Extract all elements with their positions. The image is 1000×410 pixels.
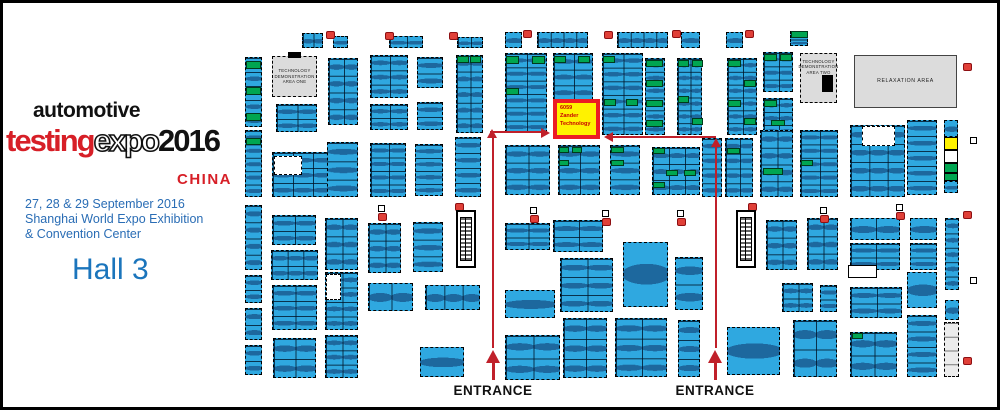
booth-block <box>370 143 406 197</box>
demo-area-stage <box>288 52 301 58</box>
featured-booth-cell <box>506 56 519 64</box>
booth-block <box>944 163 958 173</box>
featured-booth-cell <box>626 99 638 106</box>
featured-booth-cell <box>646 80 663 87</box>
route-arrow-line <box>492 362 495 380</box>
featured-booth-cell <box>246 138 261 145</box>
featured-booth-cell <box>678 60 689 67</box>
booth-block <box>370 55 408 98</box>
booth-block <box>944 120 958 137</box>
featured-booth-cell <box>763 168 783 175</box>
booth-block <box>273 338 316 378</box>
featured-booth-cell <box>611 160 624 166</box>
booth-block <box>944 322 959 377</box>
booth-block <box>272 285 317 330</box>
facility-icon <box>378 213 387 221</box>
booth-block <box>420 347 464 377</box>
escalator-icon <box>736 210 756 268</box>
booth-block <box>505 32 522 48</box>
booth-block <box>417 102 443 130</box>
highlighted-booth-name: Zander <box>560 113 596 121</box>
booth-block <box>505 335 560 380</box>
logo-word-china: CHINA <box>177 172 232 187</box>
featured-booth-cell <box>653 182 665 188</box>
tech-demo-area-two-label: TECHNOLOGY DEMONSTRATION AREA TWO <box>799 59 839 75</box>
booth-block <box>910 218 937 240</box>
route-arrow-head <box>604 132 613 142</box>
event-venue-line2: & Convention Center <box>25 227 203 242</box>
hall-label: Hall 3 <box>72 255 149 285</box>
featured-booth-cell <box>801 160 813 166</box>
booth-block <box>944 173 958 181</box>
featured-booth-cell <box>666 170 678 176</box>
featured-booth-cell <box>246 61 261 69</box>
logo-automotive: automotive <box>33 100 240 121</box>
booth-block <box>425 285 480 310</box>
featured-booth-cell <box>764 54 777 61</box>
featured-booth-cell <box>728 60 741 67</box>
logo-word-testing: testing <box>6 123 94 158</box>
booth-block <box>327 142 358 197</box>
booth-block <box>681 32 700 48</box>
featured-booth-cell <box>692 118 703 125</box>
facility-icon <box>820 215 829 223</box>
booth-block <box>457 37 483 48</box>
booth-block <box>245 308 262 340</box>
booth-block <box>727 327 780 375</box>
pillar-icon <box>378 205 385 212</box>
facility-icon <box>677 218 686 226</box>
booth-block <box>782 283 813 312</box>
booth-block <box>945 300 959 320</box>
facility-icon <box>523 30 532 38</box>
featured-booth-cell <box>678 96 689 103</box>
booth-block <box>850 218 900 240</box>
facility-icon <box>963 357 972 365</box>
booth-block <box>615 318 667 377</box>
booth-block <box>907 120 937 195</box>
featured-booth-cell <box>646 120 663 127</box>
booth-block <box>413 222 443 272</box>
booth-block <box>417 57 443 88</box>
booth-block <box>333 36 348 48</box>
pillar-icon <box>970 277 977 284</box>
tech-demo-area-one-label: TECHNOLOGY DEMONSTRATION AREA ONE <box>273 68 316 84</box>
escalator-track <box>465 217 472 261</box>
facility-icon <box>896 212 905 220</box>
booth-block <box>563 318 607 378</box>
booth-block <box>793 320 837 377</box>
booth-block <box>910 243 937 270</box>
booth-block <box>368 223 401 273</box>
booth-block <box>328 58 358 125</box>
booth-block <box>276 104 317 132</box>
facility-icon <box>963 211 972 219</box>
facility-icon <box>604 31 613 39</box>
booth-block <box>675 257 703 310</box>
route-arrow-line <box>613 136 716 138</box>
facility-icon <box>326 31 335 39</box>
featured-booth-cell <box>559 147 569 153</box>
booth-block <box>760 130 793 197</box>
featured-booth-cell <box>684 170 696 176</box>
featured-booth-cell <box>246 87 261 95</box>
featured-booth-cell <box>246 113 261 121</box>
booth-block <box>623 242 668 307</box>
booth-block <box>325 335 358 378</box>
featured-booth-cell <box>744 118 756 125</box>
booth-block <box>271 250 318 280</box>
featured-booth-cell <box>764 100 777 107</box>
booth-block <box>820 285 837 312</box>
route-arrow-head <box>541 128 550 138</box>
booth-block <box>302 33 323 48</box>
booth-block <box>368 283 413 311</box>
route-arrow-line <box>715 147 717 348</box>
logo-word-expo: expo <box>94 123 158 158</box>
featured-booth-cell <box>791 31 808 38</box>
relaxation-area-label: RELAXATION AREA <box>877 78 934 85</box>
entrance-label-left: ENTRANCE <box>428 383 558 398</box>
highlighted-booth: 6059 Zander Technology <box>553 99 600 139</box>
booth-block <box>617 32 668 48</box>
tech-demo-area-one: TECHNOLOGY DEMONSTRATION AREA ONE <box>272 56 317 97</box>
escalator-icon <box>456 210 476 268</box>
booth-block <box>560 258 613 312</box>
featured-booth-cell <box>572 147 582 153</box>
booth-block <box>245 205 262 270</box>
logo-testing-expo: testingexpo2016 <box>6 125 226 156</box>
pillar-icon <box>677 210 684 217</box>
booth-block <box>370 104 408 130</box>
booth-block <box>325 218 358 270</box>
booth-block <box>455 137 481 197</box>
featured-booth-cell <box>744 80 756 87</box>
featured-booth-cell <box>692 60 703 67</box>
pillar-icon <box>602 210 609 217</box>
booth-block <box>505 223 550 250</box>
pillar-icon <box>530 207 537 214</box>
route-arrow-head <box>487 129 497 138</box>
event-venue-line1: Shanghai World Expo Exhibition <box>25 212 203 227</box>
event-details: 27, 28 & 29 September 2016 Shanghai Worl… <box>25 197 203 242</box>
featured-booth-cell <box>780 54 792 61</box>
relaxation-area: RELAXATION AREA <box>854 55 957 108</box>
booth-block <box>456 55 483 133</box>
event-dates: 27, 28 & 29 September 2016 <box>25 197 203 212</box>
highlighted-booth-number: 6059 <box>560 105 596 113</box>
highlighted-booth-name2: Technology <box>560 121 596 129</box>
facility-icon <box>602 218 611 226</box>
featured-booth-cell <box>554 56 566 63</box>
booth-block <box>944 150 958 163</box>
booth-block <box>505 290 555 318</box>
vacant-booth-cell <box>274 156 302 175</box>
booth-block <box>389 36 423 48</box>
booth-block <box>415 144 443 196</box>
booth-block <box>725 138 753 197</box>
logo-word-year: 2016 <box>158 123 219 158</box>
facility-icon <box>385 32 394 40</box>
featured-booth-cell <box>532 56 545 64</box>
booth-block <box>945 218 959 290</box>
demo-area-stage <box>822 75 833 92</box>
booth-block <box>678 320 700 377</box>
booth-block <box>850 287 902 318</box>
featured-booth-cell <box>603 56 615 63</box>
escalator-track <box>745 217 752 261</box>
featured-booth-cell <box>852 333 863 339</box>
featured-booth-cell <box>559 160 569 166</box>
route-arrow-head <box>711 138 721 147</box>
featured-booth-cell <box>611 147 624 153</box>
featured-booth-cell <box>771 120 785 126</box>
booth-block <box>505 145 550 195</box>
booth-block <box>245 345 262 375</box>
floor-map: automotive testingexpo2016 CHINA 27, 28 … <box>0 0 1000 410</box>
booth-block <box>553 220 603 252</box>
booth-block <box>944 181 958 193</box>
booth-block <box>907 272 937 308</box>
pillar-icon <box>820 207 827 214</box>
facility-icon <box>963 63 972 71</box>
booth-block <box>807 218 838 270</box>
event-branding: automotive testingexpo2016 CHINA 27, 28 … <box>20 100 240 156</box>
vacant-booth-cell <box>862 126 895 146</box>
facility-icon <box>530 215 539 223</box>
facility-icon <box>745 30 754 38</box>
booth-block <box>602 53 643 135</box>
featured-booth-cell <box>653 148 665 154</box>
pillar-icon <box>970 137 977 144</box>
featured-booth-cell <box>646 60 663 67</box>
booth-block <box>272 215 316 245</box>
vacant-booth-cell <box>326 274 341 300</box>
featured-booth-cell <box>506 88 519 95</box>
route-arrow-head <box>708 350 722 363</box>
booth-block <box>537 32 588 48</box>
featured-booth-cell <box>728 100 741 107</box>
featured-booth-cell <box>578 56 590 63</box>
facility-icon <box>449 32 458 40</box>
facility-icon <box>672 30 681 38</box>
route-arrow-head <box>486 350 500 363</box>
route-arrow-line <box>714 362 717 380</box>
featured-booth-cell <box>604 99 616 106</box>
featured-booth-cell <box>727 148 740 154</box>
booth-block <box>245 275 262 303</box>
entrance-label-right: ENTRANCE <box>650 383 780 398</box>
booth-block <box>944 137 958 150</box>
booth-block <box>848 265 877 278</box>
featured-booth-cell <box>470 56 481 63</box>
booth-block <box>726 32 743 48</box>
featured-booth-cell <box>646 100 663 107</box>
route-arrow-line <box>492 138 494 348</box>
booth-block <box>766 220 797 270</box>
route-arrow-line <box>490 131 542 133</box>
booth-block <box>907 315 937 377</box>
pillar-icon <box>896 204 903 211</box>
featured-booth-cell <box>457 56 469 63</box>
